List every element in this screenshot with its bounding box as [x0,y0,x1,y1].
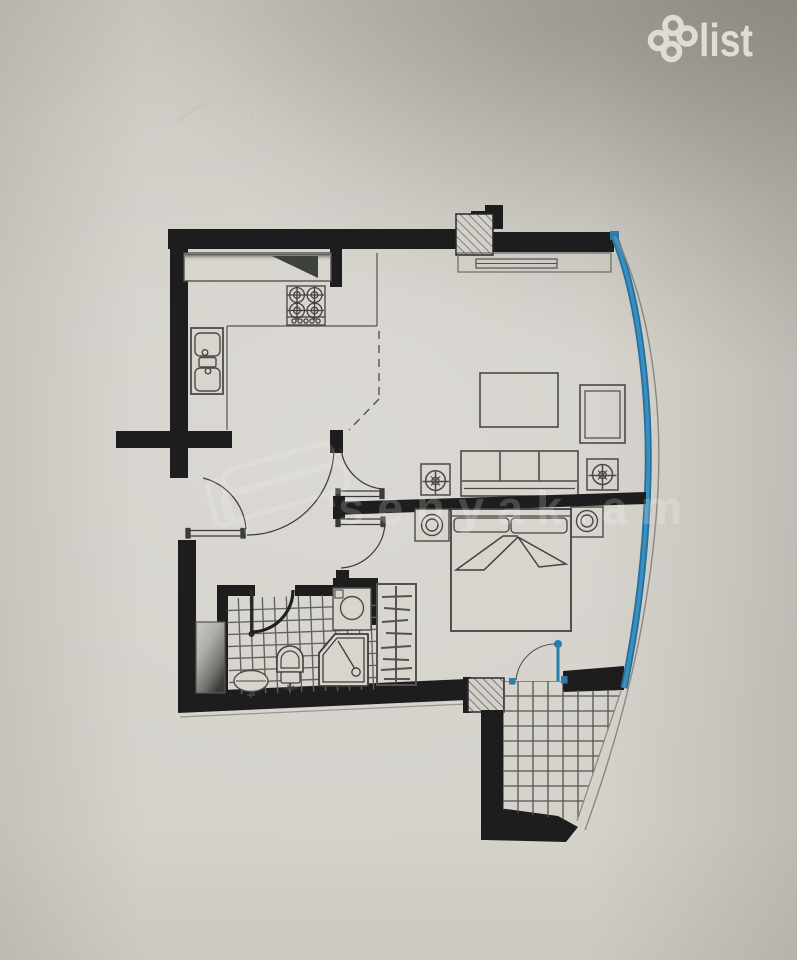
svg-text:list: list [699,14,753,66]
svg-text:senyak.am: senyak.am [338,481,695,534]
